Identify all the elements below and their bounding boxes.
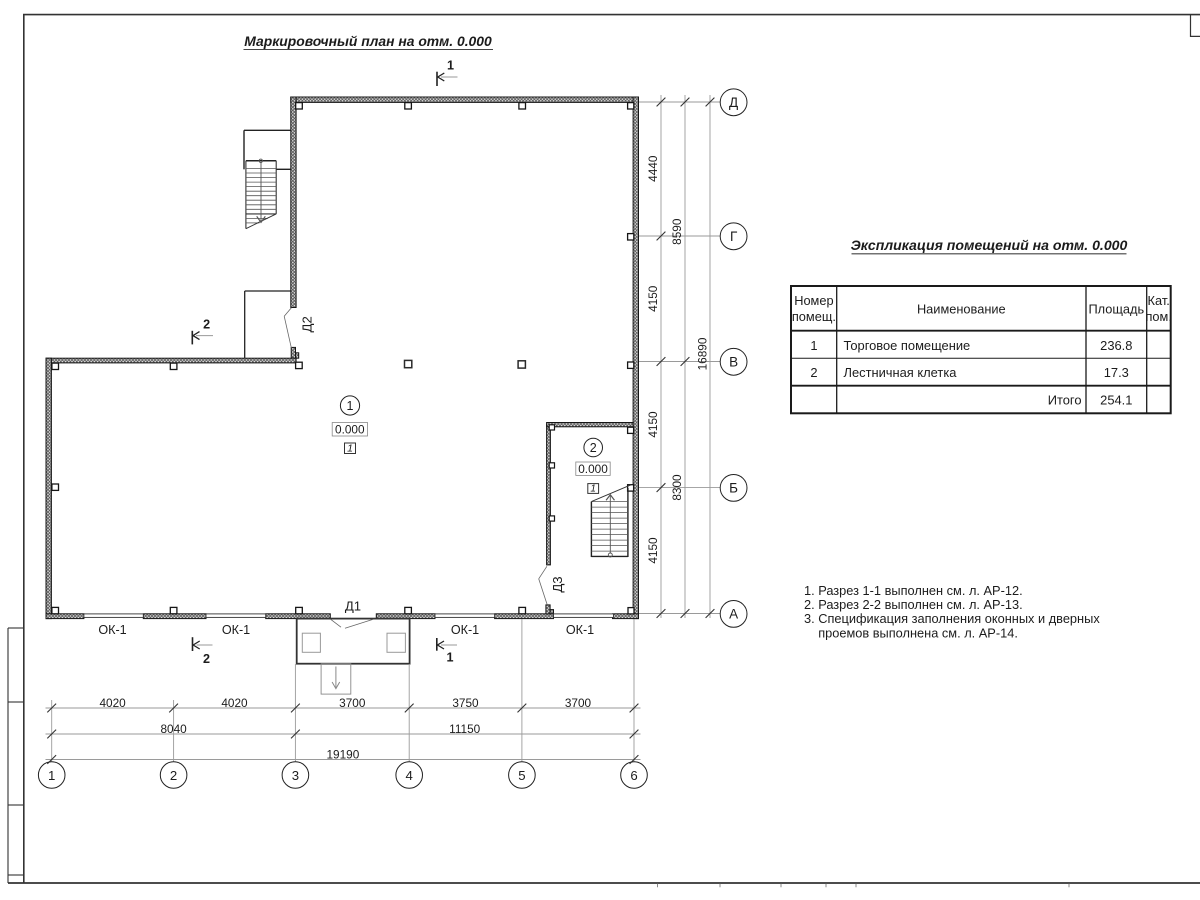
svg-text:1: 1 [447,59,454,73]
svg-text:2: 2 [810,365,817,380]
svg-text:8590: 8590 [670,218,684,245]
svg-text:Экспликация помещений на отм.: Экспликация помещений на отм. 0.000 [851,237,1128,253]
svg-text:4440: 4440 [646,155,660,182]
svg-text:11150: 11150 [449,722,480,736]
svg-text:3700: 3700 [339,696,366,710]
svg-text:4020: 4020 [221,696,248,710]
svg-text:2: 2 [203,318,210,332]
svg-text:0.000: 0.000 [578,462,608,476]
svg-text:Площадь: Площадь [1088,302,1144,317]
svg-text:1: 1 [347,399,354,413]
svg-text:Г: Г [730,229,738,244]
svg-text:8040: 8040 [160,722,187,736]
svg-text:1: 1 [48,768,55,783]
svg-text:ОК-1: ОК-1 [451,623,479,637]
svg-text:4150: 4150 [646,411,660,438]
svg-text:1: 1 [446,651,453,665]
svg-text:ОК-1: ОК-1 [98,623,126,637]
svg-text:3. Спецификация заполнения око: 3. Спецификация заполнения оконных и две… [804,611,1100,626]
svg-text:2: 2 [203,652,210,666]
svg-text:Торговое помещение: Торговое помещение [844,338,971,353]
svg-text:ОК-1: ОК-1 [222,623,250,637]
svg-text:А: А [729,607,738,622]
svg-text:3: 3 [292,768,299,783]
svg-text:1: 1 [590,484,596,495]
svg-text:4150: 4150 [646,537,660,564]
svg-text:помещ.: помещ. [792,309,836,324]
svg-text:254.1: 254.1 [1100,393,1132,408]
svg-text:Лестничная клетка: Лестничная клетка [844,365,958,380]
svg-text:2: 2 [590,441,597,455]
svg-text:Д1: Д1 [345,599,361,614]
svg-text:16890: 16890 [696,337,710,370]
svg-text:2: 2 [170,768,177,783]
svg-text:2. Разрез 2-2 выполнен см. л.: 2. Разрез 2-2 выполнен см. л. АР-13. [804,597,1023,612]
svg-text:3700: 3700 [565,696,592,710]
svg-text:ОК-1: ОК-1 [566,623,594,637]
svg-text:0.000: 0.000 [335,422,365,436]
svg-text:Д3: Д3 [550,576,565,592]
svg-text:пом.: пом. [1145,309,1171,324]
svg-text:Наименование: Наименование [917,302,1006,317]
svg-text:1: 1 [810,338,817,353]
svg-text:236.8: 236.8 [1100,338,1132,353]
svg-text:Итого: Итого [1048,393,1082,408]
svg-text:1. Разрез 1-1 выполнен см. л.: 1. Разрез 1-1 выполнен см. л. АР-12. [804,583,1023,598]
svg-text:19190: 19190 [326,747,359,761]
svg-text:17.3: 17.3 [1104,365,1129,380]
svg-text:4020: 4020 [99,696,126,710]
svg-text:5: 5 [518,768,525,783]
svg-text:1: 1 [347,443,353,455]
svg-text:Д: Д [729,95,738,110]
svg-text:4150: 4150 [646,285,660,312]
svg-text:Д2: Д2 [299,316,314,332]
svg-text:Маркировочный план на отм. 0.0: Маркировочный план на отм. 0.000 [244,33,492,49]
svg-text:Номер: Номер [794,293,833,308]
svg-text:проемов выполнена см. л. АР-14: проемов выполнена см. л. АР-14. [818,625,1018,640]
svg-text:6: 6 [630,768,637,783]
svg-text:В: В [729,355,738,370]
svg-text:4: 4 [406,768,413,783]
svg-text:Кат.: Кат. [1148,293,1170,308]
svg-text:8300: 8300 [670,474,684,501]
svg-text:Б: Б [729,481,738,496]
svg-text:3750: 3750 [452,696,479,710]
